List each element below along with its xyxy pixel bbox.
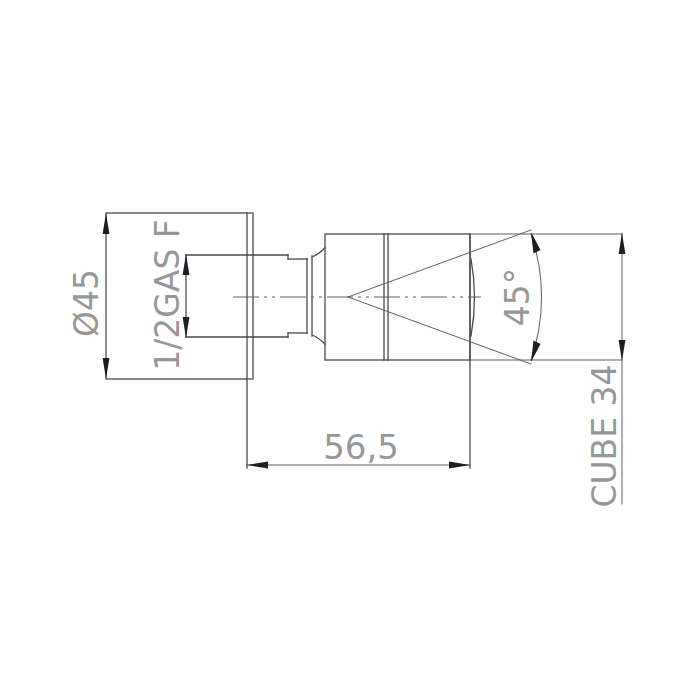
angle-label: 45° xyxy=(498,268,537,327)
arrow-diameter-top xyxy=(103,213,110,234)
dimension-lines xyxy=(247,230,622,504)
arrow-diameter-bottom xyxy=(103,358,110,379)
arrow-angle-top xyxy=(531,232,541,254)
thread-label: 1/2GAS F xyxy=(148,219,187,371)
arrow-length-right xyxy=(449,462,470,469)
cube-label: CUBE 34 xyxy=(585,364,624,507)
arrow-length-left xyxy=(247,462,268,469)
arrow-cube-bottom xyxy=(619,340,626,361)
arrow-angle-bottom xyxy=(531,341,541,363)
dimension-labels: Ø45 1/2GAS F 56,5 45° CUBE 34 xyxy=(67,219,624,507)
nozzle-dimension-drawing: Ø45 1/2GAS F 56,5 45° CUBE 34 xyxy=(0,0,700,700)
thread-outline xyxy=(186,248,325,344)
arrow-cube-top xyxy=(619,233,626,254)
technical-drawing-page: Ø45 1/2GAS F 56,5 45° CUBE 34 xyxy=(0,0,700,700)
diameter-label: Ø45 xyxy=(67,269,106,337)
length-label: 56,5 xyxy=(323,427,399,467)
